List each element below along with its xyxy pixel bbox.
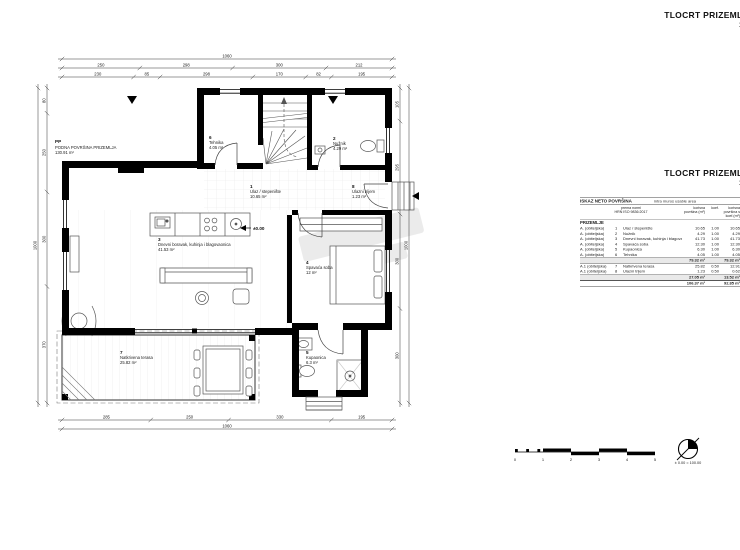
svg-text:1.23 m²: 1.23 m² bbox=[352, 194, 367, 199]
area-table-body-2: A.1 (obiteljska)7Natkrivena terasa25.820… bbox=[580, 264, 740, 275]
area-table-subtitle: intra muros usable area bbox=[654, 199, 696, 204]
table-cell: A. (obiteljska) bbox=[580, 252, 615, 257]
dim-label: 230 bbox=[94, 72, 102, 77]
dim-label: 330 bbox=[276, 415, 284, 420]
dim-label: 300 bbox=[395, 352, 400, 360]
table-cell: 6 bbox=[615, 252, 623, 257]
room-label-spavaca: 4 Spavaća soba 12 m² bbox=[306, 260, 333, 275]
dim-label: 298 bbox=[183, 63, 191, 68]
dim-label: 1000 bbox=[404, 240, 409, 250]
kitchen-counter bbox=[150, 213, 250, 236]
dim-label: 105 bbox=[395, 100, 400, 108]
dim-label: 212 bbox=[356, 63, 364, 68]
table-cell: 0.50 bbox=[705, 269, 719, 274]
table-cell: 4.05 bbox=[682, 252, 705, 257]
table-cell: 0.62 bbox=[719, 269, 740, 274]
dim-label: 1060 bbox=[222, 54, 232, 59]
table-row: A. (obiteljska)6Tehnika4.051.004.05 bbox=[580, 252, 740, 257]
table-cell: 8 bbox=[615, 269, 623, 274]
table-cell: 1.23 bbox=[682, 269, 705, 274]
svg-text:4: 4 bbox=[626, 457, 629, 462]
outdoor-dining-set bbox=[194, 346, 252, 396]
dim-label: 195 bbox=[358, 72, 366, 77]
column-area: korisna površina (m²) bbox=[682, 206, 705, 218]
table-cell: 1.00 bbox=[705, 252, 719, 257]
dim-label: 195 bbox=[358, 415, 366, 420]
svg-text:41.53 m²: 41.53 m² bbox=[158, 247, 175, 252]
dim-label: 370 bbox=[42, 341, 47, 349]
dim-label: 295 bbox=[395, 163, 400, 171]
staircase bbox=[259, 97, 311, 164]
floor-area-label: PP PODNA POVRŠINA PRIZEMLJA 130.91 m² bbox=[55, 139, 117, 155]
svg-text:0: 0 bbox=[514, 457, 517, 462]
benchmark-label: ± 0.00 = 100.00 bbox=[675, 461, 701, 465]
bathroom-fixtures bbox=[294, 338, 363, 393]
area-table: ISKAZ NETO POVRŠINA intra muros usable a… bbox=[580, 197, 740, 287]
svg-text:2: 2 bbox=[570, 457, 573, 462]
sheet-title: TLOCRT PRIZEMLJA bbox=[664, 10, 740, 20]
dim-label: 250 bbox=[42, 148, 47, 156]
table-subtotal-row-2: 27.05 m² 13.52 m² bbox=[580, 274, 740, 280]
dim-label: 80 bbox=[42, 98, 47, 103]
dim-label: 1060 bbox=[222, 424, 232, 429]
area-table-body: A. (obiteljska)1Ulaz / stepenište10.651.… bbox=[580, 226, 740, 258]
svg-text:12 m²: 12 m² bbox=[306, 270, 317, 275]
svg-text:3: 3 bbox=[598, 457, 601, 462]
dim-label: 298 bbox=[203, 72, 211, 77]
svg-text:6.3 m²: 6.3 m² bbox=[306, 360, 318, 365]
svg-text:4.05 m²: 4.05 m² bbox=[209, 145, 224, 150]
dim-label: 250 bbox=[186, 415, 194, 420]
entry-porch-steps bbox=[392, 182, 419, 210]
dim-label: 82 bbox=[316, 72, 321, 77]
dim-label: 170 bbox=[276, 72, 284, 77]
benchmark-symbol: ± 0.00 = 100.00 bbox=[675, 438, 701, 465]
table-total-row: 106.37 m² 92.85 m² bbox=[580, 281, 740, 287]
sheet-title-2: TLOCRT PRIZEMLJA bbox=[664, 168, 740, 178]
column-koef: koef. bbox=[705, 206, 719, 218]
scale-bar: 0 1 2 3 4 5 bbox=[514, 449, 657, 463]
table-row: A.1 (obiteljska)8Ulazni trijem1.230.500.… bbox=[580, 269, 740, 274]
table-cell: 4.05 bbox=[719, 252, 740, 257]
wc-fixtures bbox=[315, 140, 384, 154]
dim-label: 300 bbox=[276, 63, 284, 68]
bathroom-porch-steps bbox=[306, 397, 342, 410]
svg-text:10.65 m²: 10.65 m² bbox=[250, 194, 267, 199]
drawing-sheet: ±0.00 1060250298300212230852981708219528… bbox=[0, 0, 740, 550]
room-label-tehnika: 6 Tehnika 4.05 m² bbox=[209, 135, 224, 150]
room-label-kupaonica: 5 Kupaonica 6.3 m² bbox=[306, 350, 326, 365]
table-cell: Ulazni trijem bbox=[623, 269, 682, 274]
bed bbox=[300, 218, 385, 304]
dim-label: 1000 bbox=[33, 240, 38, 250]
table-cell: A.1 (obiteljska) bbox=[580, 269, 615, 274]
svg-text:1: 1 bbox=[542, 457, 545, 462]
area-table-title-row: ISKAZ NETO POVRŠINA intra muros usable a… bbox=[580, 197, 740, 205]
floor-area-value: 130.91 m² bbox=[55, 150, 74, 155]
floor-area-code: PP bbox=[55, 139, 61, 144]
svg-text:4.29 m²: 4.29 m² bbox=[333, 146, 348, 151]
svg-text:5: 5 bbox=[654, 457, 657, 462]
dim-label: 85 bbox=[144, 72, 149, 77]
area-table-title: ISKAZ NETO POVRŠINA bbox=[580, 199, 654, 204]
area-table-header: prema normi HRN ISO 9836:2017 korisna po… bbox=[580, 205, 740, 220]
dim-label: 250 bbox=[97, 63, 105, 68]
table-cell: Tehnika bbox=[623, 252, 682, 257]
dim-label: 300 bbox=[42, 235, 47, 243]
room-label-nuznik: 2 Nužnik 4.29 m² bbox=[333, 136, 348, 151]
column-area-koef: korisna površina s koef.(m²) bbox=[719, 206, 740, 218]
dim-label: 300 bbox=[395, 257, 400, 265]
column-norm: prema normi HRN ISO 9836:2017 bbox=[580, 206, 682, 218]
svg-text:25.82 m²: 25.82 m² bbox=[120, 360, 137, 365]
level-marker-label: ±0.00 bbox=[253, 226, 265, 231]
dim-label: 285 bbox=[103, 415, 111, 420]
